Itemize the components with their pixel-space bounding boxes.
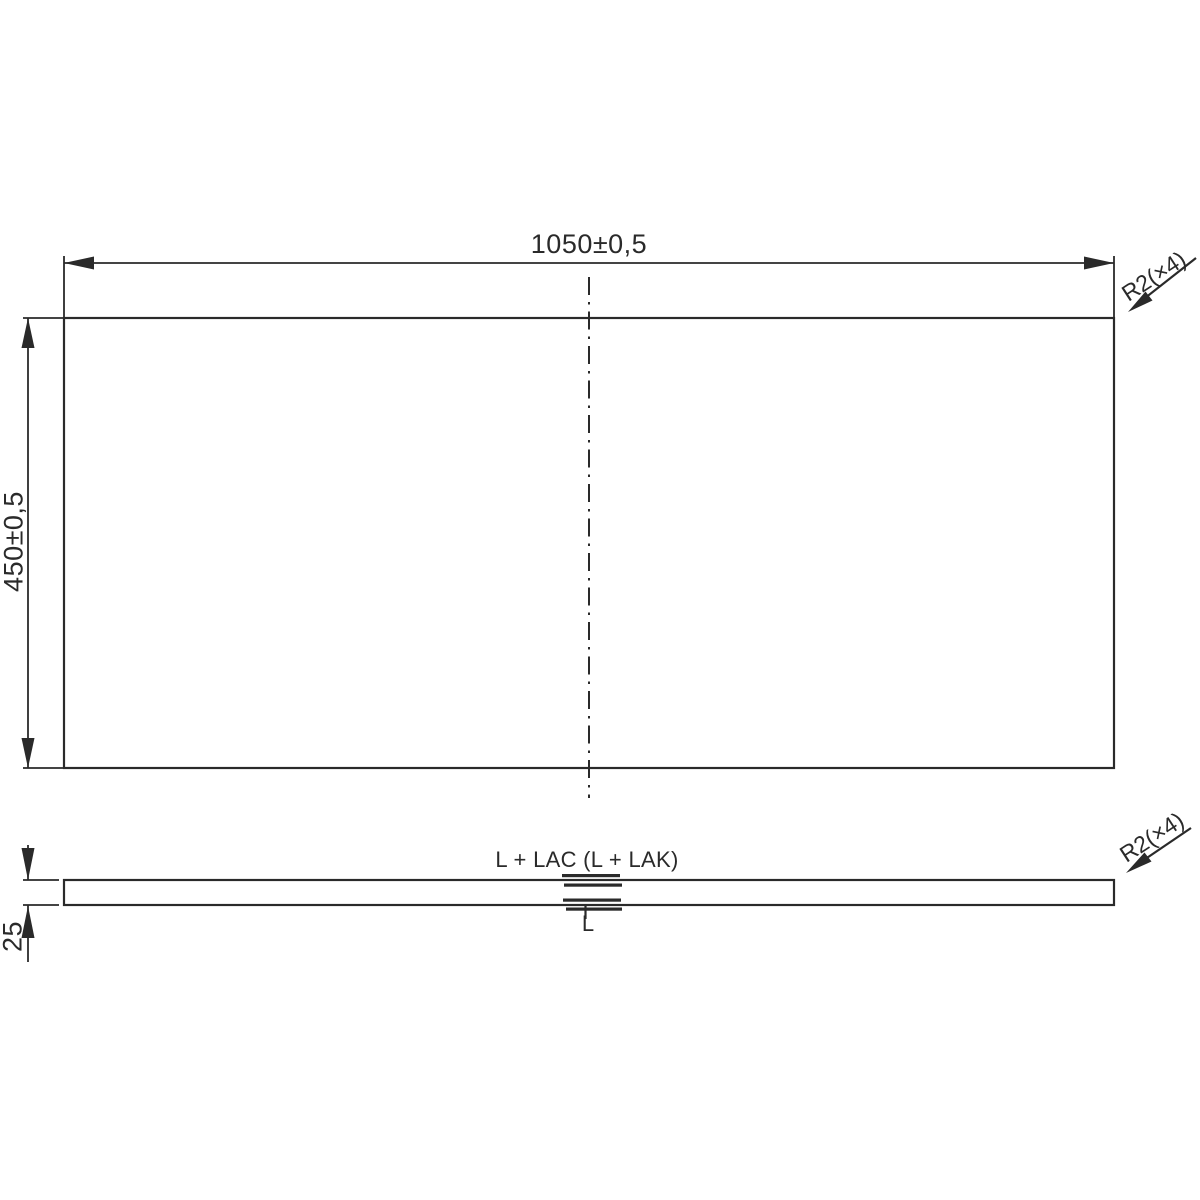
core-layer-label: L: [568, 913, 608, 935]
height-dimension-label: 450±0,5: [1, 442, 28, 642]
drawing-lines: [0, 0, 1200, 1200]
width-dimension-label: 1050±0,5: [489, 231, 689, 258]
thickness-dimension-label: 25: [0, 907, 27, 967]
technical-drawing-page: 1050±0,5 450±0,5 R2(×4) L + LAC (L + LAK…: [0, 0, 1200, 1200]
surface-finish-label: L + LAC (L + LAK): [437, 849, 737, 871]
